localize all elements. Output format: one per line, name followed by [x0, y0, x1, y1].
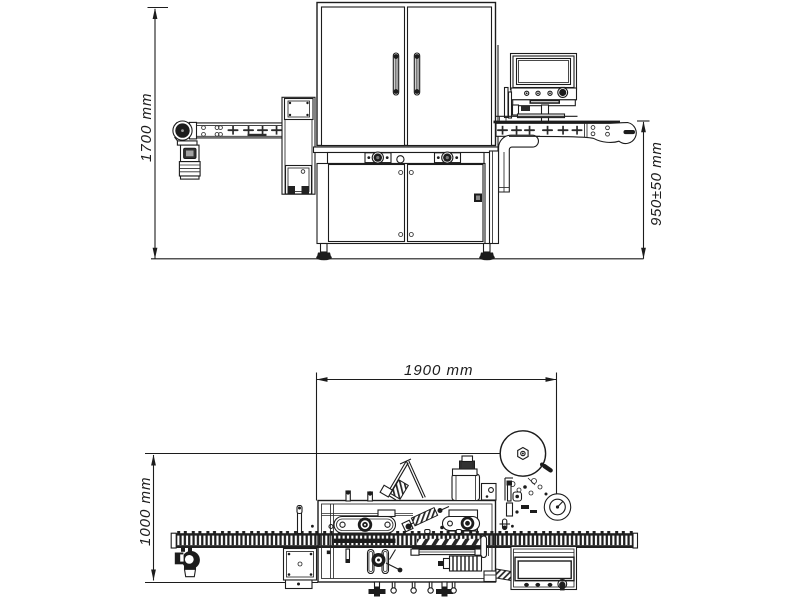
- svg-text:950±50 mm: 950±50 mm: [648, 141, 665, 226]
- svg-text:1700 mm: 1700 mm: [138, 92, 155, 162]
- svg-text:1000 mm: 1000 mm: [137, 476, 154, 546]
- svg-text:1900 mm: 1900 mm: [404, 362, 474, 379]
